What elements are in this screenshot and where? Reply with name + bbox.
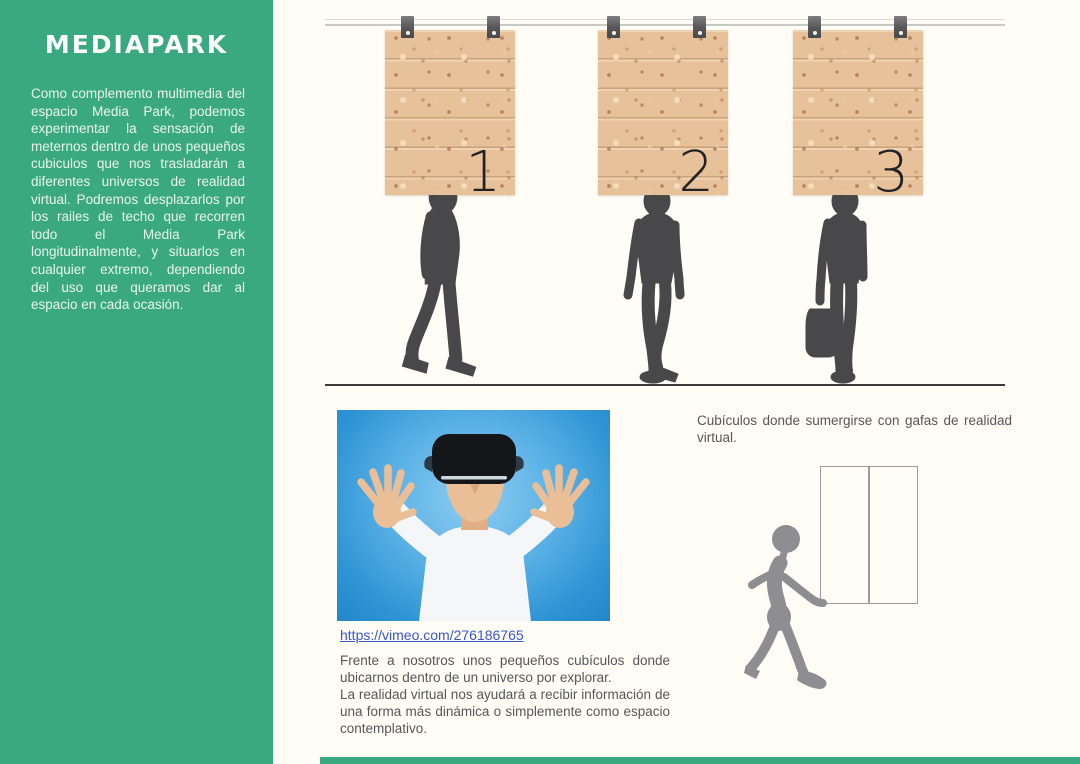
panel-number: 1 [465, 145, 501, 201]
description-paragraph-2: La realidad virtual nos ayudará a recibi… [340, 686, 670, 737]
person-silhouette-front [610, 188, 705, 386]
walking-figure-icon [744, 521, 836, 693]
sidebar: MEDIAPARK Como complemento multimedia de… [0, 0, 273, 764]
rail-bracket-icon [894, 16, 907, 38]
panel-number: 2 [678, 145, 714, 201]
person-silhouette-profile [398, 183, 498, 386]
mediapark-slide: MEDIAPARK Como complemento multimedia de… [0, 0, 1080, 764]
description-paragraph-1: Frente a nosotros unos pequeños cubículo… [340, 652, 670, 686]
person-silhouette-with-bag [796, 188, 888, 386]
cork-panel-3: 3 [793, 30, 923, 195]
right-caption: Cubículos donde sumergirse con gafas de … [697, 412, 1012, 446]
cubicle-sketch-panel-2 [869, 466, 918, 604]
cork-panel-2: 2 [598, 30, 728, 195]
rail-bracket-icon [487, 16, 500, 38]
rail-bracket-icon [808, 16, 821, 38]
description-block: Frente a nosotros unos pequeños cubículo… [340, 652, 670, 737]
vr-child-photo [337, 410, 610, 621]
rail-bracket-icon [401, 16, 414, 38]
page-title: MEDIAPARK [0, 30, 273, 59]
intro-paragraph: Como complemento multimedia del espacio … [31, 85, 245, 314]
panel-number: 3 [873, 145, 909, 201]
vimeo-link[interactable]: https://vimeo.com/276186765 [340, 627, 524, 643]
cork-panel-1: 1 [385, 30, 515, 195]
bottom-accent-bar [320, 757, 1080, 764]
rail-bracket-icon [607, 16, 620, 38]
rail-bracket-icon [693, 16, 706, 38]
vr-child-illustration [337, 410, 610, 621]
